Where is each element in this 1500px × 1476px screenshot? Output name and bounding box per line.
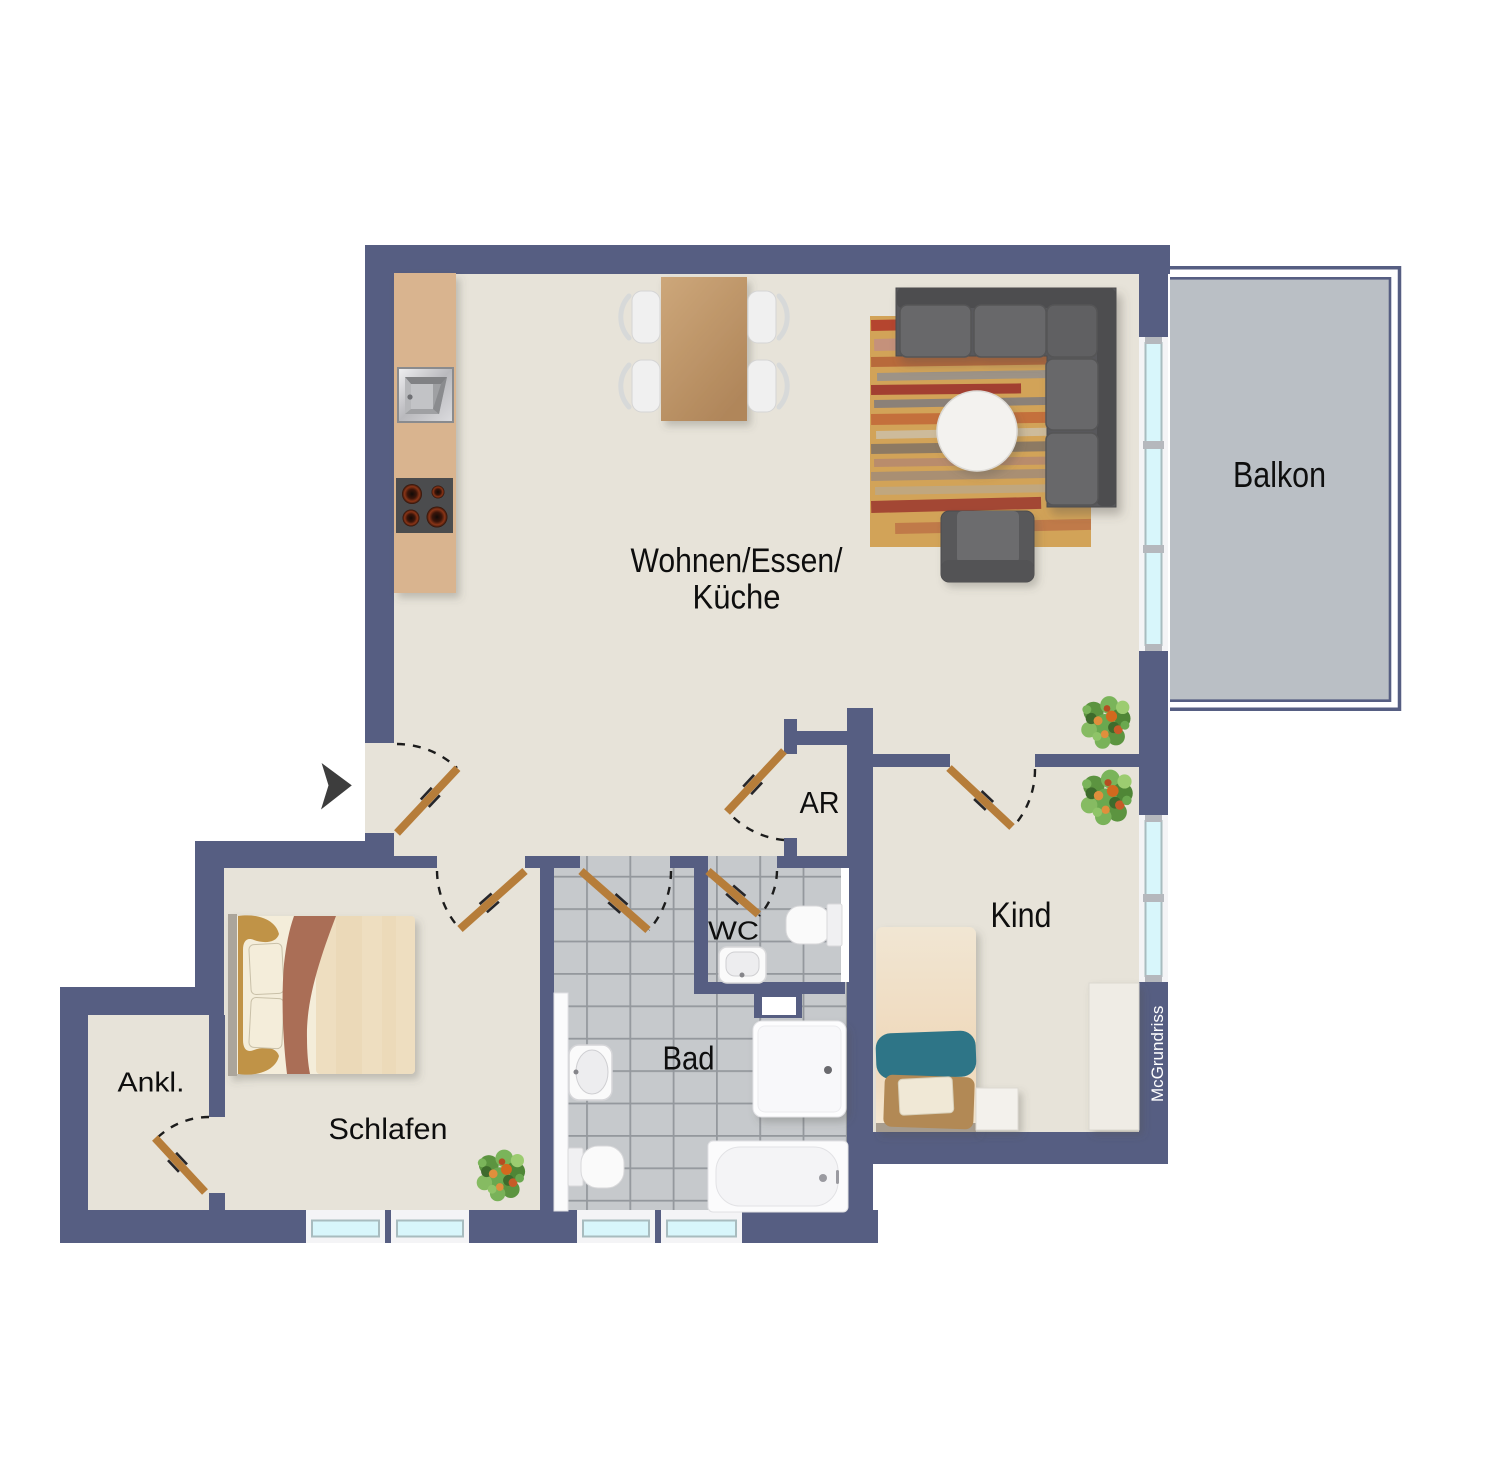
svg-text:Küche: Küche [693,578,781,616]
svg-text:AR: AR [800,785,840,820]
svg-text:Schlafen: Schlafen [329,1113,448,1146]
svg-text:WC: WC [708,916,759,946]
svg-text:Kind: Kind [991,896,1052,935]
svg-text:Bad: Bad [663,1040,715,1077]
svg-text:Balkon: Balkon [1233,454,1326,495]
svg-text:Ankl.: Ankl. [118,1067,185,1098]
svg-text:McGrundriss: McGrundriss [1148,1006,1167,1102]
svg-text:Wohnen/Essen/: Wohnen/Essen/ [631,542,843,580]
